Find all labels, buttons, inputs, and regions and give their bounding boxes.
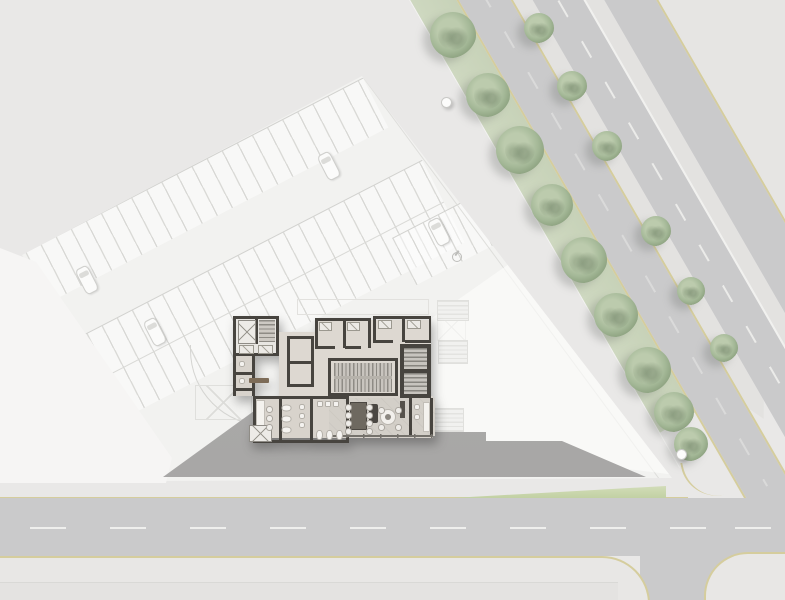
sink-fixture bbox=[414, 404, 420, 410]
chair bbox=[378, 407, 385, 414]
sink-fixture bbox=[239, 378, 245, 384]
chair bbox=[395, 424, 402, 431]
tree-icon bbox=[592, 131, 622, 161]
urinal-fixture bbox=[333, 401, 339, 407]
urinal-fixture bbox=[325, 401, 331, 407]
tree-icon bbox=[625, 347, 671, 393]
chair bbox=[345, 420, 352, 427]
tree-icon bbox=[677, 277, 705, 305]
tree-icon bbox=[594, 293, 638, 337]
chair bbox=[378, 424, 385, 431]
tree-icon bbox=[524, 13, 554, 43]
tree-icon bbox=[654, 392, 694, 432]
tree-icon bbox=[466, 73, 510, 117]
toilet-fixture bbox=[282, 405, 292, 412]
toilet-fixture bbox=[316, 430, 323, 440]
sink-fixture bbox=[299, 404, 305, 410]
tree-icon bbox=[641, 216, 671, 246]
tree-icon bbox=[531, 184, 573, 226]
tree-icon bbox=[561, 237, 607, 283]
ground-floor-plan bbox=[233, 314, 435, 458]
tree-icon bbox=[496, 126, 544, 174]
ghost-stair bbox=[437, 300, 469, 321]
chair bbox=[345, 428, 352, 435]
south-street-center-dashes bbox=[0, 527, 785, 529]
sink-fixture bbox=[299, 422, 305, 428]
stool bbox=[266, 415, 273, 422]
parcel-southwest bbox=[0, 556, 650, 600]
chair bbox=[345, 412, 352, 419]
toilet-fixture bbox=[326, 430, 333, 440]
tree-icon bbox=[430, 12, 476, 58]
site-plan-canvas bbox=[0, 0, 785, 600]
accessible-parking-icon bbox=[452, 252, 462, 262]
tree-icon bbox=[710, 334, 738, 362]
sink-fixture bbox=[414, 414, 420, 420]
toilet-fixture bbox=[282, 427, 292, 434]
chair bbox=[366, 428, 373, 435]
upper-floor-ghost-outline bbox=[297, 299, 429, 315]
streetlight-icon bbox=[676, 449, 687, 460]
urinal-fixture bbox=[317, 401, 323, 407]
chair bbox=[366, 404, 373, 411]
toilet-fixture bbox=[336, 430, 343, 440]
plan-fixtures-layer bbox=[233, 314, 435, 458]
toilet-fixture bbox=[282, 416, 292, 423]
sidewalk-green-wedge bbox=[452, 486, 666, 498]
parcel-southwest-inner bbox=[0, 582, 618, 600]
sink-fixture bbox=[299, 413, 305, 419]
stool bbox=[266, 406, 273, 413]
sink-fixture bbox=[239, 361, 245, 367]
chair bbox=[345, 404, 352, 411]
tree-icon bbox=[557, 71, 587, 101]
ghost-stair bbox=[438, 340, 468, 364]
chair bbox=[366, 420, 373, 427]
streetlight-icon bbox=[441, 97, 452, 108]
chair bbox=[366, 412, 373, 419]
chair bbox=[395, 407, 402, 414]
stool bbox=[266, 424, 273, 431]
